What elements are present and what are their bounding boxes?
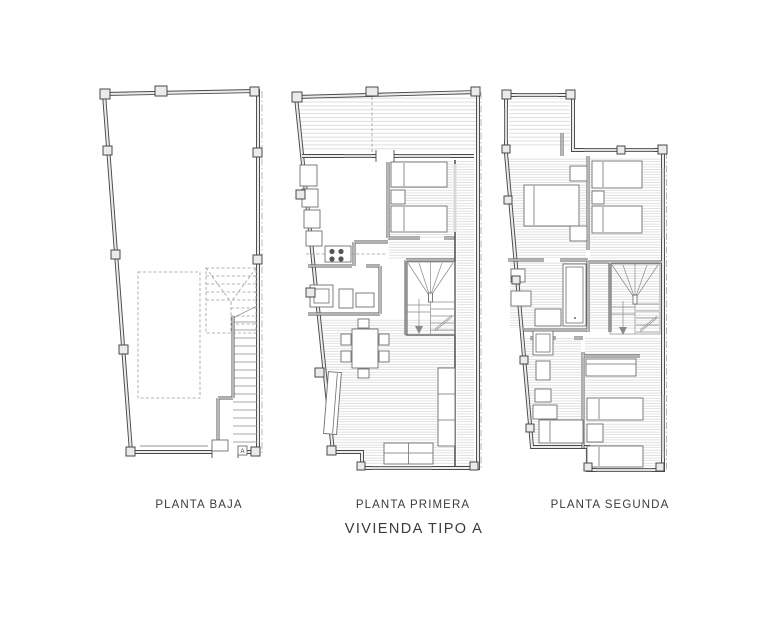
desk xyxy=(536,361,550,380)
chair xyxy=(358,369,369,378)
terrace-door-gap xyxy=(376,150,394,162)
toilet xyxy=(535,309,561,326)
chair xyxy=(379,351,389,362)
nightstand xyxy=(570,226,587,241)
sofa-bottom xyxy=(384,443,433,464)
label-planta-segunda: PLANTA SEGUNDA xyxy=(551,499,670,511)
stove xyxy=(325,246,351,262)
meter-box-letter: A xyxy=(240,449,244,455)
bed xyxy=(391,206,447,232)
label-planta-baja: PLANTA BAJA xyxy=(155,499,242,511)
nightstand xyxy=(570,166,587,181)
gallery-floor xyxy=(457,160,474,466)
double-bed xyxy=(524,185,579,226)
bedroom-twin-bottom xyxy=(586,359,643,467)
chair xyxy=(379,334,389,345)
bidet xyxy=(511,291,531,306)
bidet xyxy=(356,293,374,307)
bed xyxy=(592,161,642,188)
drawing-title: VIVIENDA TIPO A xyxy=(345,521,483,537)
floor-plans-svg: A xyxy=(0,0,769,625)
bed xyxy=(539,420,583,443)
kitchen-sink xyxy=(304,210,320,228)
shower xyxy=(563,264,586,326)
parking-bay-outline xyxy=(138,272,200,398)
bed xyxy=(391,162,447,187)
dresser xyxy=(533,405,557,419)
label-planta-primera: PLANTA PRIMERA xyxy=(356,499,470,511)
bathroom xyxy=(310,285,374,308)
floor-plan-planta-primera xyxy=(292,87,481,470)
floor-plan-planta-baja: A xyxy=(100,86,262,458)
counter-unit xyxy=(306,231,322,246)
stair-landing-floor xyxy=(590,264,661,330)
nightstand xyxy=(587,424,603,442)
toilet xyxy=(339,289,353,308)
bed xyxy=(592,206,642,233)
stair-newel xyxy=(633,295,637,304)
floor-plan-planta-segunda xyxy=(502,90,667,471)
nightstand xyxy=(391,190,405,204)
nightstand xyxy=(592,191,604,204)
stair-above-dashed xyxy=(206,268,256,333)
dresser xyxy=(535,389,551,402)
bed xyxy=(587,398,643,420)
dining-table xyxy=(352,329,378,368)
hall-floor xyxy=(389,240,455,260)
entry-cabinet xyxy=(212,440,228,451)
chair xyxy=(358,319,369,328)
sideboard-right xyxy=(438,368,455,446)
fridge xyxy=(300,165,317,186)
staircase-ground-floor xyxy=(218,306,257,442)
drawing-sheet: A xyxy=(0,0,769,625)
chair xyxy=(341,334,351,345)
meter-box: A xyxy=(238,446,247,455)
bed xyxy=(587,446,643,467)
chair xyxy=(341,351,351,362)
wall-piers-baja xyxy=(100,86,262,456)
terrace-floor xyxy=(299,94,476,152)
dresser xyxy=(586,359,636,376)
stair-newel xyxy=(429,293,433,302)
